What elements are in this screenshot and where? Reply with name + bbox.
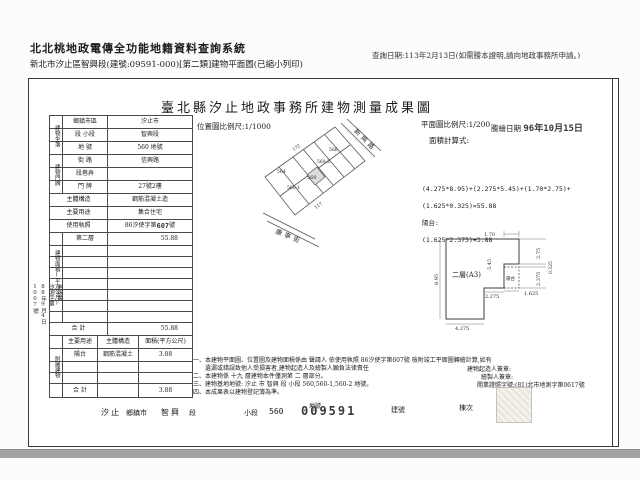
- table-row: 主體構造 鋼筋混凝土造: [50, 194, 192, 207]
- row-value: 27號2樓: [108, 181, 192, 193]
- empty-row: [50, 301, 192, 312]
- road-label-bottom: 康寧街: [274, 227, 304, 246]
- balcony-label: 陽台: [506, 275, 515, 282]
- dim-right-lower: 1.625: [524, 291, 538, 297]
- row-label: 段 小段: [63, 129, 108, 141]
- trace-date-label: 謄繪日期: [491, 124, 521, 133]
- license-suffix: 號: [169, 223, 175, 229]
- dim-inner: 5.45: [487, 259, 493, 270]
- total-row: 合 計 55.88: [50, 323, 192, 336]
- survey-document: 臺北縣汐止地政事務所建物測量成果圖 位置圖比例尺:1/1000 平面圖比例尺:1…: [28, 78, 619, 447]
- strip-subsection-label: 小段: [244, 408, 258, 418]
- license-number-stamp: 607: [156, 223, 169, 230]
- bottom-gray-band: [0, 449, 640, 458]
- table-row: 門 牌 27號2樓: [50, 181, 192, 194]
- receipt-line: 汐測字第: [47, 284, 55, 409]
- group-door-label: 建物門牌: [50, 155, 62, 194]
- annex-total-row: 合 計 3.88: [50, 384, 192, 397]
- document-subtitle: 新北市汐止區智興段(建號:09591-000)[第二類]建物平面圖(已縮小列印): [30, 58, 303, 70]
- annex-total-label: 合 計: [63, 384, 98, 397]
- empty-row: [50, 362, 192, 373]
- dim-balcony-v: 2.375: [536, 272, 542, 286]
- row-value: 55.88: [108, 233, 192, 245]
- room-label: 二層(A3): [452, 271, 481, 279]
- receipt-line: 1007號: [31, 284, 39, 409]
- dim-left: 8.95: [434, 274, 440, 285]
- empty-row: [50, 312, 192, 323]
- table-row: 鄉鎮市區 汐止市: [50, 116, 192, 129]
- table-row: 主要用途 集合住宅: [50, 207, 192, 220]
- road-label-right: 新興路: [352, 127, 379, 154]
- building-number-stamp: 009591: [301, 404, 356, 418]
- parcel-label: 560-1: [287, 185, 300, 191]
- strip-unit-label: 棟次: [459, 403, 473, 413]
- strip-section: 智興: [161, 407, 181, 418]
- page-title: 臺北縣汐止地政事務所建物測量成果圖: [161, 97, 433, 116]
- floor-plan: 1.70 8.95 5.45 2.75 0.325 2.375 2.275 1.…: [426, 229, 626, 341]
- parcel-label: 560-2: [317, 159, 330, 165]
- area-calc-label: 面積計算式:: [429, 135, 469, 146]
- license-value: 86汐使字第607號: [108, 220, 192, 232]
- empty-row: [50, 290, 192, 301]
- parcel-label: 566: [329, 147, 338, 153]
- dim-bottom: 4.275: [455, 326, 469, 332]
- row-value: 汐止市: [108, 116, 192, 128]
- row-value: [108, 168, 192, 180]
- strip-building-no-label: 建號: [391, 405, 405, 415]
- table-row: 使用執照 86汐使字第607號: [50, 220, 192, 233]
- row-value: 集合住宅: [108, 207, 192, 219]
- empty-row: [50, 246, 192, 257]
- dim-right-small: 0.325: [548, 261, 554, 274]
- table-row: 段 小段 智興段: [50, 129, 192, 142]
- trace-date: 謄繪日期 96年10月15日: [491, 121, 583, 134]
- strip-section-label: 段: [189, 408, 196, 418]
- parcel-label: 560: [307, 175, 317, 181]
- seal-stamp: [496, 387, 532, 423]
- system-title: 北北桃地政電傳全功能地籍資料查詢系統: [30, 40, 246, 56]
- location-map: 560 560-1 560-2 564 566 172 117 新興路 康寧街: [257, 115, 435, 347]
- calc-line: (4.275*8.95)+(2.275*5.45)+(1.70*2.75)+: [422, 185, 571, 193]
- annex-header: 主要用途: [63, 336, 98, 348]
- row-value: 智興段: [108, 129, 192, 141]
- annex-use: 陽台: [63, 349, 98, 361]
- dim-top: 1.70: [484, 232, 495, 238]
- query-date: 查詢日期:113年2月13日(如需謄本證明,請向地政事務所申請。): [372, 50, 580, 61]
- table-row: 地 號 560 地號: [50, 142, 192, 155]
- annex-row: 陽台 鋼筋混凝土 3.88: [50, 349, 192, 362]
- dim-balcony-h: 2.275: [485, 294, 499, 300]
- trace-date-stamp: 96年10月15日: [523, 124, 583, 134]
- row-label: 主體構造: [50, 194, 108, 206]
- receipt-stamp-column: 申請書 汐測字第 88年9月4日 1007號: [31, 284, 63, 409]
- note-4: 四、本成果表以建物登記簿為準。: [193, 387, 283, 396]
- calc-line: (1.625*0.325)=55.88: [422, 202, 496, 210]
- annex-header-row: 主要用途 主體構造 面積(平方公尺): [50, 336, 192, 349]
- edge-length: 117: [313, 201, 324, 211]
- group-situs-label: 建物坐落: [50, 116, 62, 155]
- annex-area: 3.88: [139, 349, 192, 361]
- row-label: 段巷弄: [63, 168, 108, 180]
- row-label: 第二層: [63, 233, 108, 245]
- annex-header: 面積(平方公尺): [139, 336, 192, 348]
- row-label: 使用執照: [50, 220, 108, 232]
- annex-total-value: 3.88: [139, 384, 192, 397]
- receipt-line: 申請書: [55, 284, 63, 409]
- row-value: 鋼筋混凝土造: [108, 194, 192, 206]
- row-label: 主要用途: [50, 207, 108, 219]
- building-info-table: 建物坐落 建物門牌 建物面積(平方公尺) 附屬建物 鄉鎮市區 汐止市 段 小段 …: [49, 115, 193, 398]
- license-prefix: 86汐使字第: [125, 223, 157, 229]
- row-value: 560 地號: [108, 142, 192, 154]
- row-value: 信興路: [108, 155, 192, 167]
- receipt-line: 88年9月4日: [39, 284, 47, 409]
- dim-right-upper: 2.75: [536, 248, 542, 259]
- strip-town: 汐止: [101, 407, 121, 418]
- row-label: 地 號: [63, 142, 108, 154]
- empty-row: [50, 373, 192, 384]
- row-label: 街 路: [63, 155, 108, 167]
- empty-row: [50, 268, 192, 279]
- annex-structure: 鋼筋混凝土: [98, 349, 139, 361]
- strip-parcel: 560: [269, 407, 283, 416]
- row-label: 鄉鎮市區: [63, 116, 108, 128]
- calc-line: 陽台:: [422, 219, 439, 227]
- table-row: 段巷弄: [50, 168, 192, 181]
- strip-town-label: 鄉鎮市: [126, 408, 147, 418]
- parcel-label: 564: [277, 169, 286, 175]
- total-value: 55.88: [108, 323, 192, 335]
- empty-row: [50, 257, 192, 268]
- empty-row: [50, 279, 192, 290]
- table-row: 街 路 信興路: [50, 155, 192, 168]
- row-label: 門 牌: [63, 181, 108, 193]
- annex-header: 主體構造: [98, 336, 139, 348]
- table-row: 第二層 55.88: [50, 233, 192, 246]
